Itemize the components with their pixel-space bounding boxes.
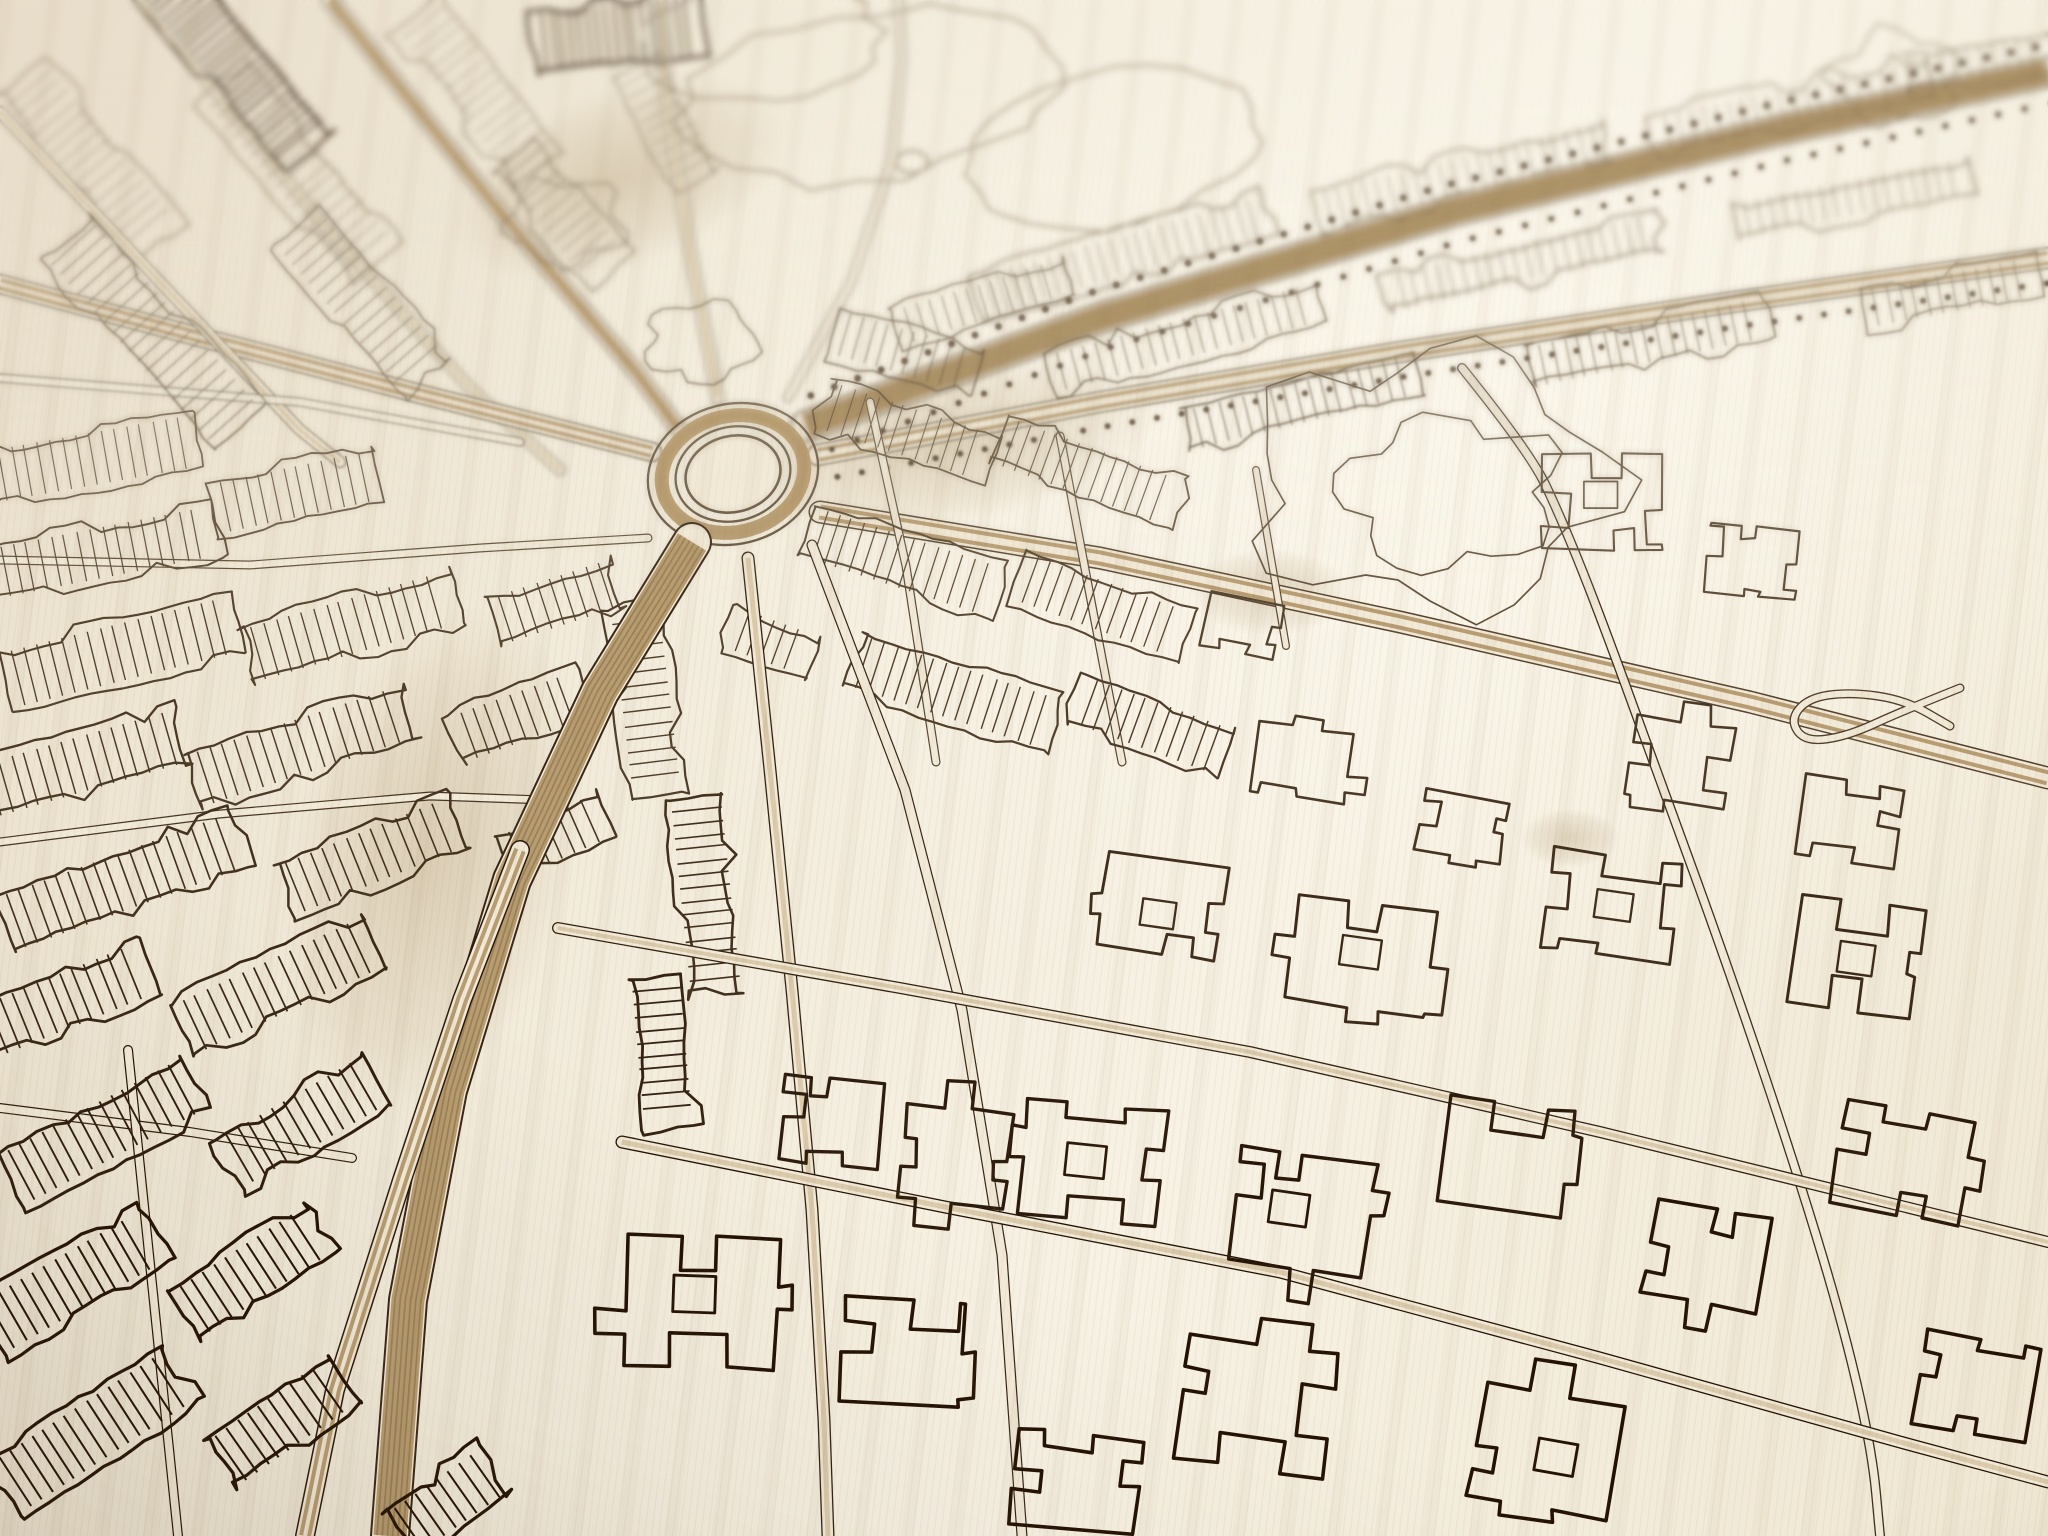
engraved-citymap — [0, 0, 2048, 1536]
wooden-map-photo: Close-up angled photograph of a laser-en… — [0, 0, 2048, 1536]
